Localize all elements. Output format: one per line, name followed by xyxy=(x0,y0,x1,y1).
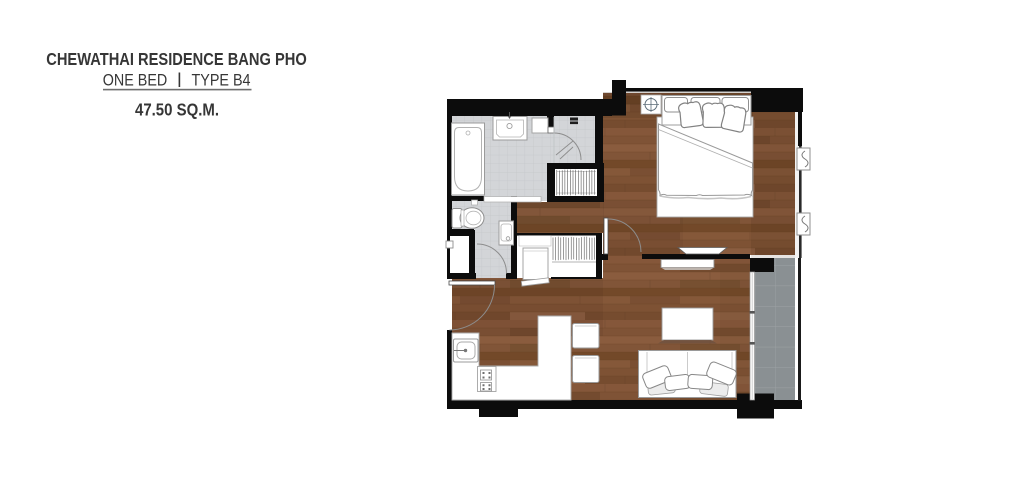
svg-text:ONE BED: ONE BED xyxy=(103,71,168,90)
svg-text:47.50 SQ.M.: 47.50 SQ.M. xyxy=(135,100,219,120)
svg-text:CHEWATHAI RESIDENCE BANG PHO: CHEWATHAI RESIDENCE BANG PHO xyxy=(46,49,307,69)
svg-text:TYPE B4: TYPE B4 xyxy=(192,71,251,90)
